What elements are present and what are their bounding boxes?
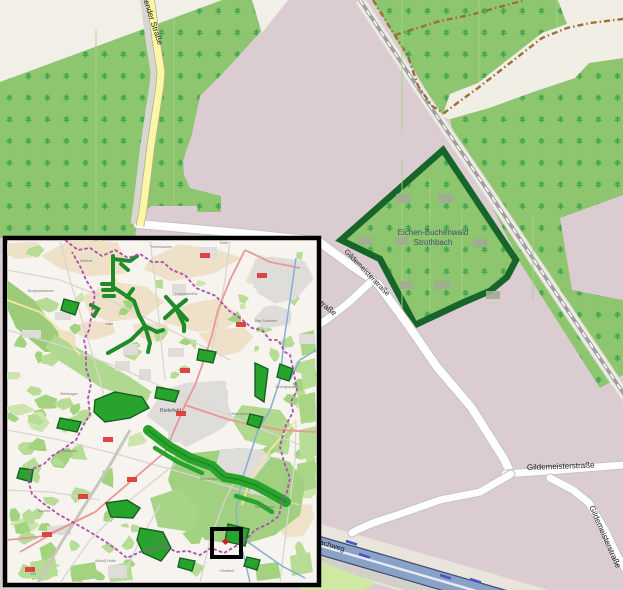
svg-text:Exter: Exter xyxy=(220,241,229,245)
svg-text:Theenhausen: Theenhausen xyxy=(150,245,172,249)
svg-text:Eichen-Buchenwald: Eichen-Buchenwald xyxy=(398,228,469,237)
svg-text:Ubbedissen: Ubbedissen xyxy=(230,412,249,416)
svg-text:Bad Salzuflen: Bad Salzuflen xyxy=(255,319,277,323)
svg-text:Hövelhof: Hövelhof xyxy=(220,569,234,573)
svg-text:Augustdorf: Augustdorf xyxy=(150,537,167,541)
svg-text:Leopoldshöhe: Leopoldshöhe xyxy=(175,292,198,296)
svg-text:Borgholzhausen: Borgholzhausen xyxy=(28,289,54,293)
svg-text:Kaunitz: Kaunitz xyxy=(38,509,50,513)
svg-text:Sennestadt: Sennestadt xyxy=(200,477,218,481)
svg-text:Halle: Halle xyxy=(105,322,113,326)
svg-text:Amshausen: Amshausen xyxy=(58,449,77,453)
svg-text:Verl: Verl xyxy=(30,572,36,576)
svg-text:Bielefeld: Bielefeld xyxy=(160,408,181,414)
svg-text:Stukenbrock: Stukenbrock xyxy=(255,505,275,509)
svg-text:Oerlinghausen: Oerlinghausen xyxy=(275,385,298,389)
svg-text:Steinhagen: Steinhagen xyxy=(60,392,78,396)
svg-text:Strothbach: Strothbach xyxy=(414,238,453,247)
svg-text:Schloß Holte: Schloß Holte xyxy=(95,559,116,563)
svg-text:Werther: Werther xyxy=(80,259,94,263)
